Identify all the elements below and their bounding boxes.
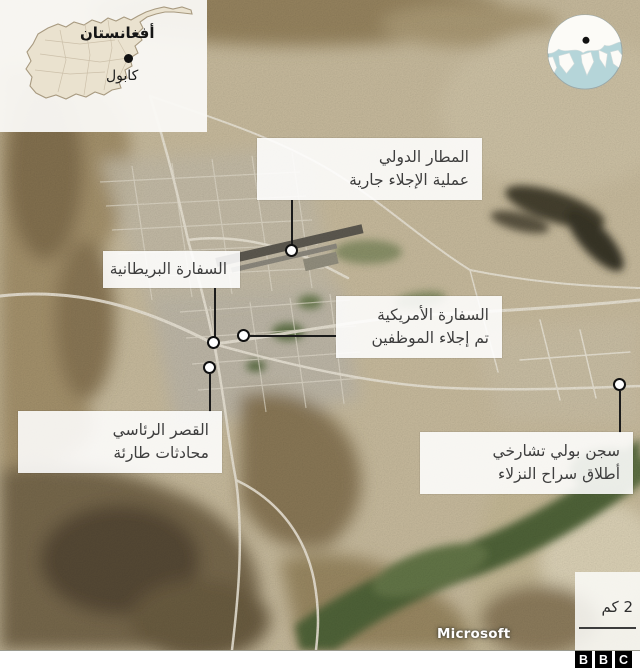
locator-globe	[546, 13, 624, 91]
bbc-logo-letter: B	[595, 651, 612, 668]
british-embassy-callout: السفارة البريطانية	[103, 251, 240, 288]
bbc-logo-letter: C	[615, 651, 632, 668]
map-provider-attribution: Microsoft	[437, 626, 510, 642]
globe-location-dot	[582, 37, 589, 44]
globe-graphic	[546, 13, 624, 91]
airport-connector-line	[291, 200, 293, 246]
british-embassy-title: السفارة البريطانية	[116, 258, 227, 281]
afghanistan-inset-map: أفغانستان كابول	[0, 0, 207, 132]
presidential-palace-title: القصر الرئاسي	[31, 419, 209, 442]
presidential-palace-marker	[203, 361, 216, 374]
kabul-map-infographic: Microsoft 2 كم المطار الدولي عملية الإجل…	[0, 0, 640, 671]
prison-connector-line	[619, 391, 621, 433]
bbc-logo: B B C	[575, 651, 632, 668]
airport-callout: المطار الدولي عملية الإجلاء جارية	[257, 138, 482, 200]
scale-bar	[579, 627, 636, 629]
us-embassy-connector-line	[250, 335, 336, 337]
prison-title: سجن بولي تشارخي	[433, 440, 620, 463]
prison-marker	[613, 378, 626, 391]
scale-label: 2 كم	[602, 598, 633, 616]
presidential-palace-subtitle: محادثات طارئة	[31, 442, 209, 465]
us-embassy-callout: السفارة الأمريكية تم إجلاء الموظفين	[336, 296, 502, 358]
afghanistan-outline	[0, 0, 207, 132]
footer-strip: B B C	[0, 651, 640, 671]
us-embassy-title: السفارة الأمريكية	[349, 304, 489, 327]
prison-callout: سجن بولي تشارخي أطلاق سراح النزلاء	[420, 432, 633, 494]
airport-subtitle: عملية الإجلاء جارية	[270, 169, 469, 192]
airport-marker	[285, 244, 298, 257]
bbc-logo-letter: B	[575, 651, 592, 668]
us-embassy-subtitle: تم إجلاء الموظفين	[349, 327, 489, 350]
inset-country-label: أفغانستان	[80, 24, 155, 42]
presidential-palace-connector-line	[209, 374, 211, 412]
kabul-dot	[124, 54, 133, 63]
airport-title: المطار الدولي	[270, 146, 469, 169]
british-embassy-marker	[207, 336, 220, 349]
inset-city-label: كابول	[106, 68, 138, 84]
map-scale: 2 كم	[575, 572, 640, 650]
presidential-palace-callout: القصر الرئاسي محادثات طارئة	[18, 411, 222, 473]
us-embassy-marker	[237, 329, 250, 342]
prison-subtitle: أطلاق سراح النزلاء	[433, 463, 620, 486]
british-embassy-connector-line	[214, 288, 216, 337]
